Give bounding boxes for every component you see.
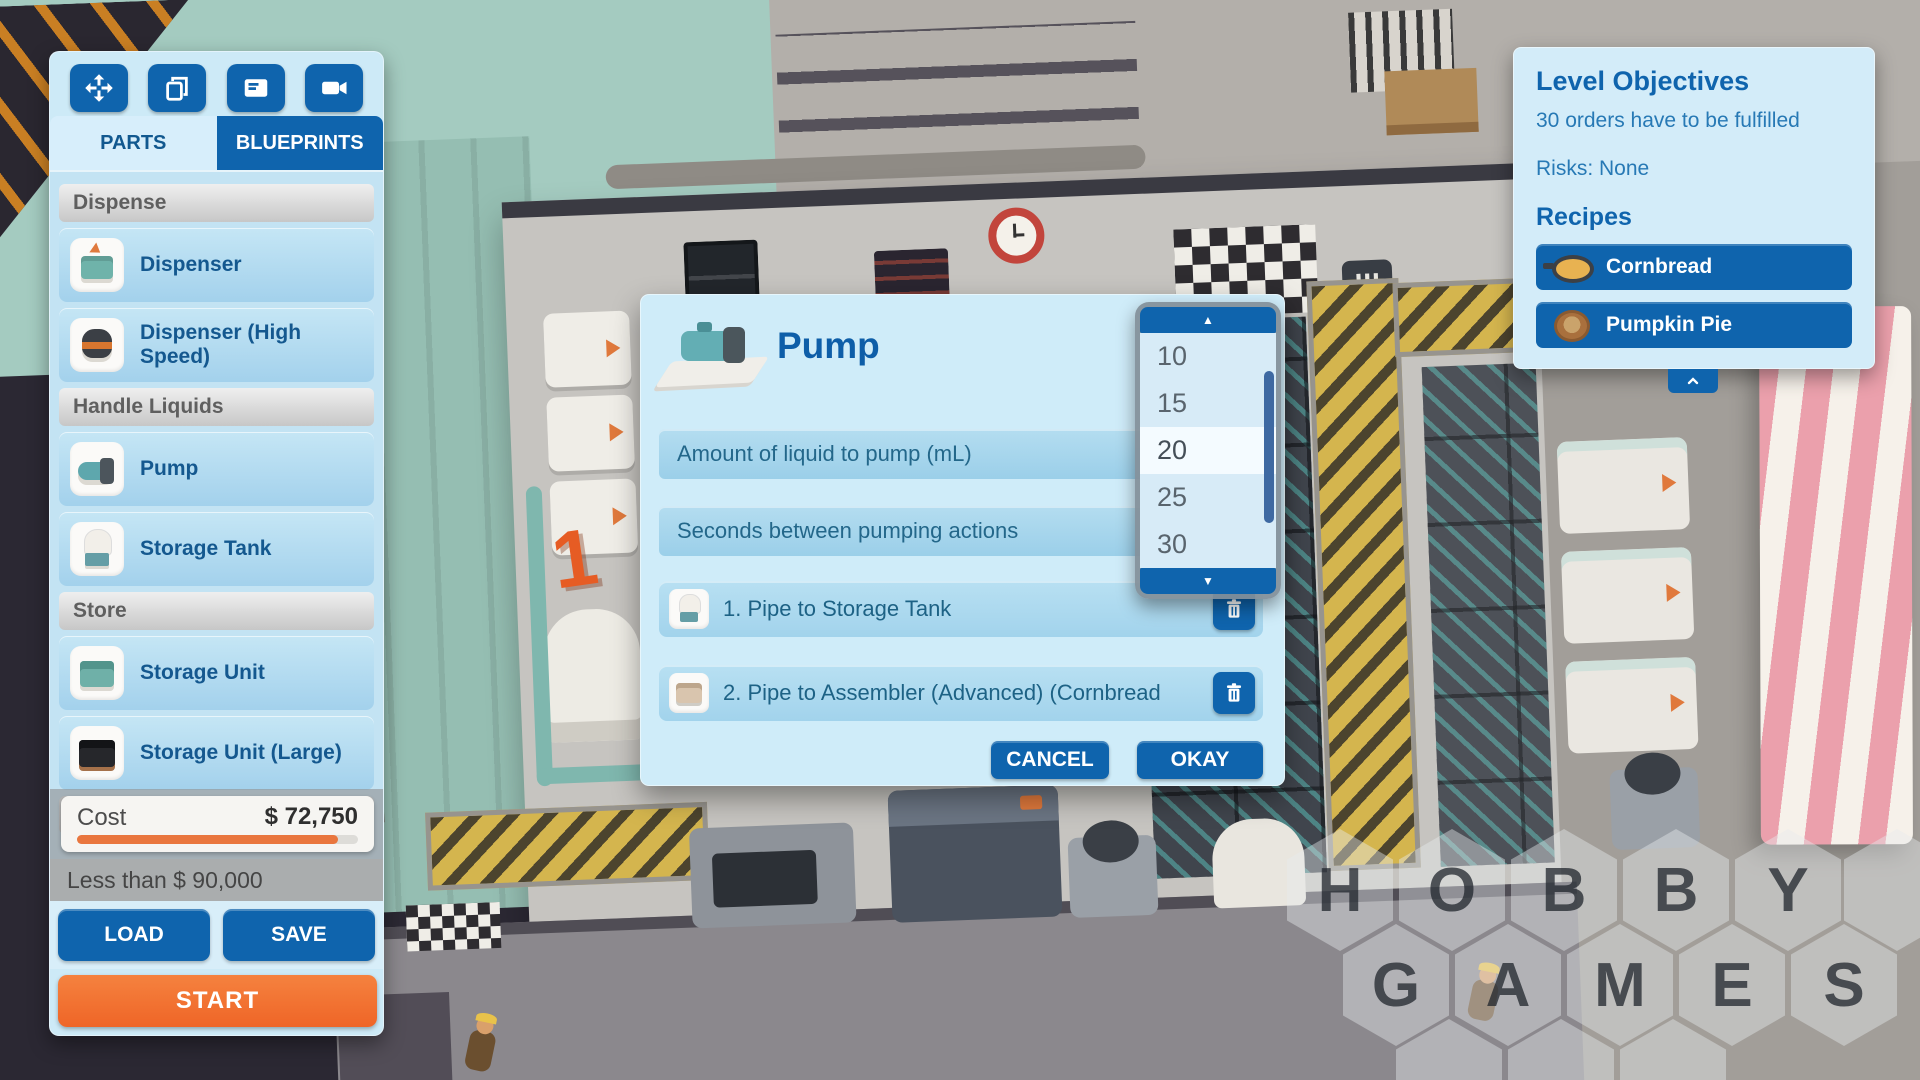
recipe-cornbread[interactable]: Cornbread	[1536, 244, 1852, 290]
value-dropdown: ▲ 1015202530 ▼	[1135, 302, 1281, 599]
computer-machine	[888, 784, 1063, 922]
cornbread-icon	[1546, 250, 1592, 284]
part-item-dispenser[interactable]: Dispenser	[59, 228, 374, 302]
recipe-pumpkin-pie[interactable]: Pumpkin Pie	[1536, 302, 1852, 348]
category-header-store: Store	[59, 592, 374, 630]
assembler-tiles	[1422, 363, 1555, 867]
tab-parts[interactable]: PARTS	[50, 116, 217, 170]
storage-unit-large-icon	[70, 726, 124, 780]
storage-tank-icon	[70, 522, 124, 576]
oven-machine	[689, 822, 857, 928]
part-label: Storage Unit (Large)	[140, 741, 342, 765]
dispenser-machine	[546, 394, 635, 471]
part-label: Dispenser	[140, 253, 242, 277]
cost-panel: Cost $ 72,750	[50, 789, 383, 859]
part-item-storage-unit[interactable]: Storage Unit	[59, 636, 374, 710]
dropdown-option-20[interactable]: 20	[1140, 427, 1276, 474]
scroll-down-arrow-icon[interactable]: ▼	[1140, 568, 1276, 594]
part-label: Storage Unit	[140, 661, 265, 685]
dropdown-option-list: 1015202530	[1140, 333, 1276, 568]
cost-box: Cost $ 72,750	[61, 796, 374, 852]
pipe-row-2[interactable]: 2. Pipe to Assembler (Advanced) (Cornbre…	[659, 665, 1263, 721]
camera-icon[interactable]	[305, 64, 363, 112]
part-label: Dispenser (High Speed)	[140, 321, 374, 369]
part-item-storage-tank[interactable]: Storage Tank	[59, 512, 374, 586]
cost-value: $ 72,750	[265, 803, 358, 831]
load-button[interactable]: LOAD	[58, 909, 210, 961]
cancel-button[interactable]: CANCEL	[991, 741, 1109, 779]
dropdown-option-25[interactable]: 25	[1140, 474, 1276, 521]
build-sidebar: PARTS BLUEPRINTS DispenseDispenserDispen…	[49, 51, 384, 1036]
recipe-label: Cornbread	[1606, 255, 1712, 279]
part-item-pump[interactable]: Pump	[59, 432, 374, 506]
dispenser-machine	[1561, 547, 1694, 644]
game-screen: Ψ 1 HOBBYGAMES	[0, 0, 1920, 1080]
scroll-up-arrow-icon[interactable]: ▲	[1140, 307, 1276, 333]
level-objectives-panel: Level Objectives 30 orders have to be fu…	[1513, 47, 1875, 369]
objectives-title: Level Objectives	[1536, 66, 1852, 97]
recipes-title: Recipes	[1536, 203, 1852, 232]
part-item-dispenser-high-speed[interactable]: Dispenser (High Speed)	[59, 308, 374, 382]
dropdown-option-10[interactable]: 10	[1140, 333, 1276, 380]
move-icon[interactable]	[70, 64, 128, 112]
chevron-up-icon	[1683, 373, 1703, 389]
delete-pipe-button[interactable]	[1213, 672, 1255, 714]
pump-icon	[70, 442, 124, 496]
risks-line: Risks: None	[1536, 157, 1852, 181]
mixer-machine	[1068, 835, 1159, 918]
scene-crate	[1384, 68, 1478, 135]
storage-tank-icon	[669, 589, 709, 629]
part-item-storage-unit-large[interactable]: Storage Unit (Large)	[59, 716, 374, 790]
cost-progress-track	[77, 835, 358, 844]
part-label: Storage Tank	[140, 537, 271, 561]
pipe-label: 1. Pipe to Storage Tank	[723, 596, 951, 622]
dispenser-high-speed-icon	[70, 318, 124, 372]
recipes-list: CornbreadPumpkin Pie	[1536, 244, 1852, 348]
tab-blueprints[interactable]: BLUEPRINTS	[217, 116, 384, 170]
storage-unit-icon	[70, 646, 124, 700]
checker-tiles	[406, 902, 502, 952]
sidebar-tabs: PARTS BLUEPRINTS	[50, 116, 383, 170]
trash-icon	[1221, 680, 1247, 706]
cooker-machine	[1211, 817, 1306, 908]
recipe-label: Pumpkin Pie	[1606, 313, 1732, 337]
sidebar-toolbar	[50, 60, 383, 116]
save-button[interactable]: SAVE	[223, 909, 375, 961]
category-header-dispense: Dispense	[59, 184, 374, 222]
category-header-handle-liquids: Handle Liquids	[59, 388, 374, 426]
dropdown-option-30[interactable]: 30	[1140, 521, 1276, 568]
dispenser-icon	[70, 238, 124, 292]
copy-icon[interactable]	[148, 64, 206, 112]
orders-objective: 30 orders have to be fulfilled	[1536, 109, 1852, 133]
part-label: Pump	[140, 457, 198, 481]
dispenser-machine	[1557, 437, 1690, 534]
pumpkin-pie-icon	[1546, 308, 1592, 342]
assembler-icon	[669, 673, 709, 713]
storage-tank-machine	[542, 607, 643, 743]
conveyor-belt	[425, 802, 710, 891]
dispenser-machine	[543, 311, 632, 388]
striped-awning	[1759, 306, 1913, 845]
collapse-panel-button[interactable]	[1668, 369, 1718, 393]
load-save-strip: LOAD SAVE	[50, 901, 383, 969]
cost-label: Cost	[77, 804, 126, 832]
start-button[interactable]: START	[58, 975, 377, 1027]
dispenser-machine	[1565, 657, 1698, 754]
trash-icon	[1221, 596, 1247, 622]
cost-progress-fill	[77, 835, 338, 844]
blueprint-icon[interactable]	[227, 64, 285, 112]
dialog-title: Pump	[777, 325, 880, 367]
dropdown-scrollbar[interactable]	[1264, 371, 1274, 523]
pipe-label: 2. Pipe to Assembler (Advanced) (Cornbre…	[723, 680, 1161, 706]
mixer-machine	[1609, 767, 1700, 850]
pump-icon	[657, 311, 767, 391]
cost-limit-text: Less than $ 90,000	[50, 859, 383, 901]
okay-button[interactable]: OKAY	[1137, 741, 1263, 779]
dropdown-option-15[interactable]: 15	[1140, 380, 1276, 427]
